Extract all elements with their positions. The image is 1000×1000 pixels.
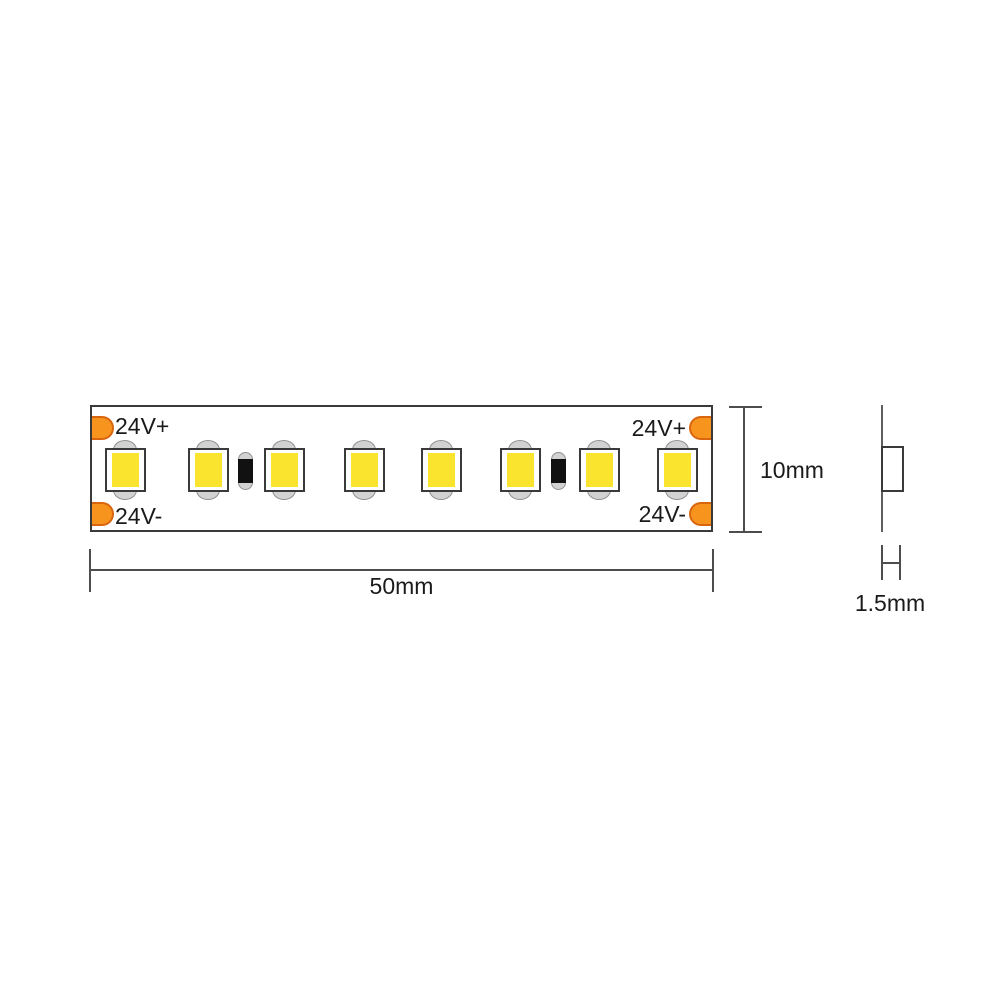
dimension-width-label: 10mm xyxy=(760,455,824,485)
dimension-length-label: 50mm xyxy=(90,571,713,601)
dimension-thickness-line xyxy=(881,562,901,564)
dimension-width-tick-top xyxy=(729,406,762,408)
solder-pad-positive-left xyxy=(92,416,114,440)
pad-label-positive-right: 24V+ xyxy=(632,416,686,440)
solder-pad-negative-left xyxy=(92,502,114,526)
solder-pad-negative-right xyxy=(689,502,711,526)
dimension-thickness-label: 1.5mm xyxy=(820,589,960,617)
pad-label-negative-right: 24V- xyxy=(639,502,686,526)
led-strip-side-view-led xyxy=(881,446,904,492)
dimension-width-tick-bottom xyxy=(729,531,762,533)
solder-pad-positive-right xyxy=(689,416,711,440)
dimension-width-line xyxy=(743,406,745,532)
pad-label-positive-left: 24V+ xyxy=(115,414,169,438)
led-strip-dimension-diagram: 24V+ 24V- 24V+ 24V- 50mm 10mm 1.5mm xyxy=(0,0,1000,1000)
led-strip-top-view: 24V+ 24V- 24V+ 24V- xyxy=(90,405,713,532)
pad-label-negative-left: 24V- xyxy=(115,504,162,528)
